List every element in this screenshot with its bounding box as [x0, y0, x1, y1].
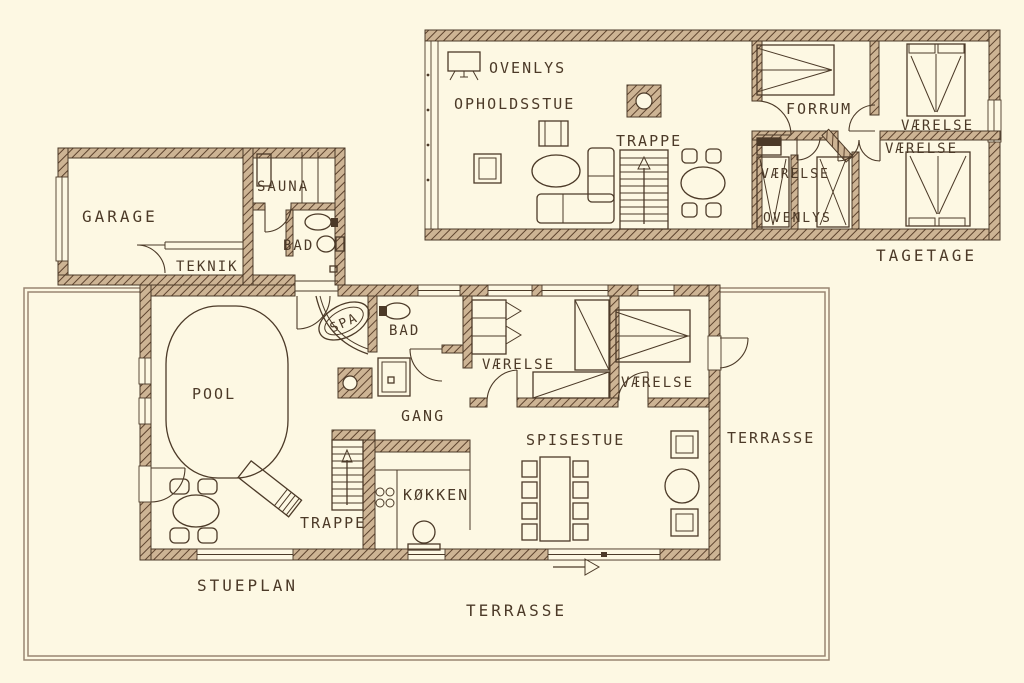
- chair: [682, 203, 697, 217]
- chair: [198, 528, 217, 543]
- room-label-vaerelse: VÆRELSE: [621, 375, 694, 391]
- stove-burner: [386, 499, 394, 507]
- sofa: [537, 194, 614, 223]
- partition: [165, 242, 243, 249]
- upper-stairs: [620, 150, 668, 229]
- garage-block: GARAGE TEKNIK SAUNA BAD: [56, 148, 345, 285]
- room-label-teknik: TEKNIK: [176, 259, 239, 275]
- plan-title-tagetage: TAGETAGE: [876, 246, 977, 265]
- wall: [335, 148, 345, 285]
- floorplan-drawing: OVENLYS OPHOLDSSTUE TRAPPE FORRUM VÆRELS…: [0, 0, 1024, 683]
- room-label-vaerelse: VÆRELSE: [482, 357, 555, 373]
- pool-ladder: [238, 461, 301, 517]
- chair: [706, 203, 721, 217]
- ground-floor-plan: POOL SPA BAD GANG VÆRELSE VÆRELSE TRAPPE…: [139, 281, 815, 620]
- door-arc: [151, 468, 185, 502]
- dining-table: [540, 457, 570, 541]
- wall: [870, 41, 879, 115]
- room-label-spisestue: SPISESTUE: [526, 431, 625, 449]
- window-tick: [427, 74, 430, 77]
- threshold: [295, 281, 338, 291]
- chair: [706, 149, 721, 163]
- room-label-koekken: KØKKEN: [403, 486, 469, 504]
- ground-labels: POOL SPA BAD GANG VÆRELSE VÆRELSE TRAPPE…: [192, 311, 815, 620]
- bathroom: [378, 303, 410, 396]
- wall: [852, 152, 859, 229]
- room-label-bad: BAD: [283, 238, 314, 254]
- wall: [368, 296, 377, 352]
- bedroom-2: [616, 310, 690, 362]
- chair: [522, 524, 537, 540]
- chair: [198, 479, 217, 494]
- chair: [573, 482, 588, 498]
- kitchen-sink: [413, 521, 435, 543]
- room-label-sauna: SAUNA: [257, 179, 309, 195]
- wall: [709, 285, 720, 560]
- stove-burner: [376, 499, 384, 507]
- stair-arrow-head: [638, 157, 650, 169]
- wall: [610, 296, 619, 400]
- ground-stairs: [332, 440, 363, 510]
- stove-burner: [386, 488, 394, 496]
- window-tick: [427, 109, 430, 112]
- wall: [368, 440, 470, 452]
- wall: [470, 398, 487, 407]
- wardrobe: [757, 45, 834, 95]
- coffee-table: [532, 155, 580, 187]
- room-label-garage: GARAGE: [82, 207, 158, 226]
- floor-drain: [388, 377, 394, 383]
- room-label-trappe: TRAPPE: [300, 514, 366, 532]
- pool-room: [166, 306, 302, 543]
- sink: [305, 214, 331, 230]
- armchair: [539, 121, 568, 146]
- window-tick: [427, 144, 430, 147]
- upper-chimney: [627, 85, 661, 117]
- window-band: [425, 41, 438, 229]
- chair: [573, 524, 588, 540]
- upper-floor-plan: OVENLYS OPHOLDSSTUE TRAPPE FORRUM VÆRELS…: [425, 30, 1001, 265]
- room-label-ovenlys: OVENLYS: [763, 211, 832, 226]
- bunk-bed: [472, 300, 506, 354]
- flue: [343, 376, 357, 390]
- floorplan-svg: OVENLYS OPHOLDSSTUE TRAPPE FORRUM VÆRELS…: [0, 0, 1024, 683]
- room-label-vaerelse: VÆRELSE: [901, 118, 974, 134]
- table: [681, 167, 725, 199]
- chair: [522, 482, 537, 498]
- armchair: [671, 509, 698, 536]
- tap: [331, 218, 338, 227]
- door-arc: [137, 245, 165, 273]
- wall: [425, 30, 1000, 41]
- room-label-gang: GANG: [401, 407, 445, 425]
- plan-title-stueplan: STUEPLAN: [197, 576, 298, 595]
- wall: [517, 398, 618, 407]
- wall: [332, 430, 375, 440]
- door-arc: [720, 338, 748, 368]
- chair: [522, 461, 537, 477]
- room-label-opholdsstue: OPHOLDSSTUE: [454, 95, 575, 113]
- window-tick: [427, 179, 430, 182]
- sauna-bench-slats: [302, 152, 318, 203]
- room-label-ovenlys: OVENLYS: [489, 59, 566, 77]
- room-label-vaerelse: VÆRELSE: [885, 141, 958, 157]
- windows-bottom: [197, 549, 660, 560]
- bed: [906, 152, 970, 226]
- room-label-vaerelse: VÆRELSE: [761, 167, 830, 182]
- chair: [522, 503, 537, 519]
- chair: [573, 461, 588, 477]
- stove-burner: [376, 488, 384, 496]
- skylight-icon: [448, 52, 480, 80]
- area-label-terrasse: TERRASSE: [727, 429, 815, 447]
- area-label-terrasse: TERRASSE: [466, 601, 567, 620]
- wall: [291, 203, 335, 210]
- round-table: [665, 469, 699, 503]
- bed: [907, 44, 965, 116]
- wall: [442, 345, 463, 353]
- door-arc: [410, 349, 442, 381]
- wall: [648, 398, 709, 407]
- chair: [682, 149, 697, 163]
- room-label-pool: POOL: [192, 385, 236, 403]
- door-arc: [487, 370, 517, 402]
- ground-chimney: [338, 368, 372, 398]
- table: [173, 495, 219, 527]
- toilet: [317, 236, 335, 252]
- entrance-arrow: [553, 559, 599, 575]
- sink: [384, 303, 410, 319]
- chair: [573, 503, 588, 519]
- wall: [140, 285, 295, 296]
- armchair-cushion: [479, 158, 496, 179]
- wall: [253, 203, 265, 210]
- chair: [170, 528, 189, 543]
- door-opening: [708, 336, 721, 370]
- armchair: [671, 431, 698, 458]
- door-arc: [859, 140, 880, 161]
- room-label-trappe: TRAPPE: [616, 132, 682, 150]
- room-label-forrum: FORRUM: [786, 100, 852, 118]
- tap: [379, 306, 387, 316]
- wall: [58, 275, 295, 285]
- wall: [425, 229, 1000, 240]
- flue: [636, 93, 652, 109]
- wall: [463, 296, 472, 368]
- wall: [243, 148, 253, 285]
- room-label-bad: BAD: [389, 323, 420, 339]
